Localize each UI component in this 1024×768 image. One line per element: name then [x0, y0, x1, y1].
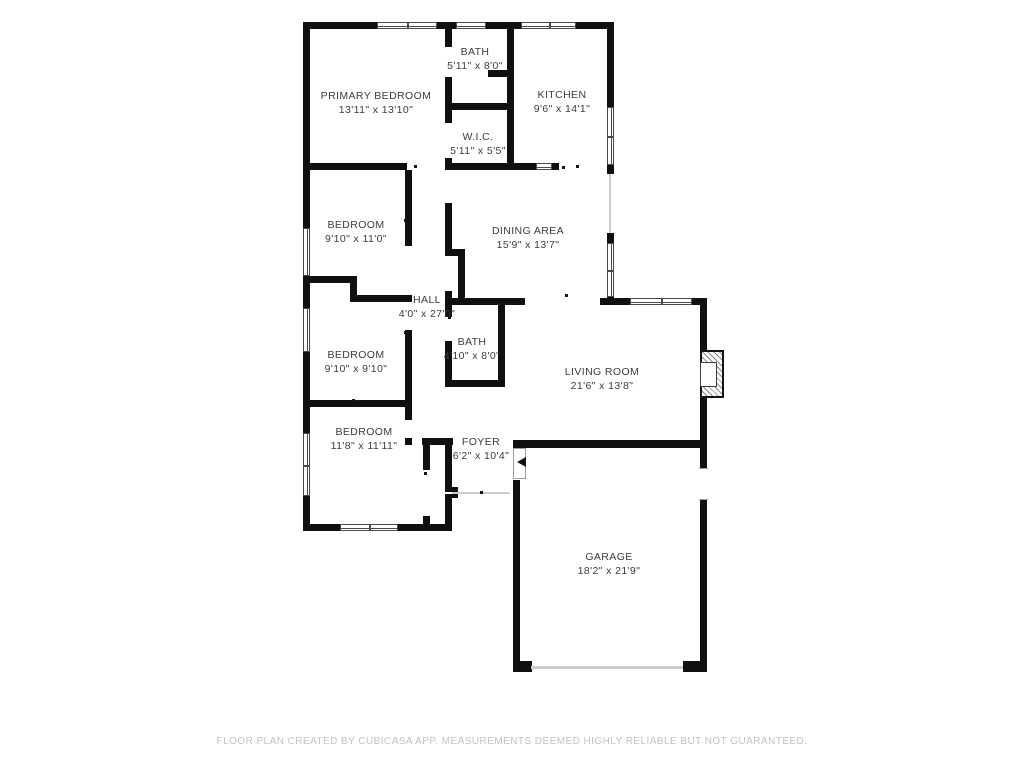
room-dimensions: 9'10" x 11'0" — [325, 232, 387, 246]
window-icon — [521, 22, 576, 29]
window-icon — [630, 298, 692, 305]
door-marker — [352, 399, 355, 402]
wall — [445, 203, 452, 252]
room-dimensions: 9'6" x 14'1" — [534, 102, 591, 116]
room-label-12-garage: GARAGE18'2" x 21'9" — [578, 550, 641, 578]
room-name: BATH — [444, 335, 501, 349]
wall — [398, 524, 452, 531]
room-label-6-hall: HALL4'0" x 27'0" — [399, 293, 456, 321]
window-icon — [303, 228, 310, 276]
window-icon — [536, 163, 552, 170]
wall — [305, 524, 340, 531]
wall — [458, 256, 465, 300]
room-dimensions: 5'11" x 8'0" — [447, 59, 503, 73]
wall — [576, 22, 614, 29]
room-label-3-w-i-c: W.I.C.5'11" x 5'5" — [450, 130, 506, 158]
floor-plan-page: PRIMARY BEDROOM13'11" x 13'10"BATH5'11" … — [0, 0, 1024, 768]
wall — [700, 305, 707, 350]
wall — [423, 445, 430, 470]
room-label-10-bedroom: BEDROOM11'8" x 11'11" — [331, 425, 398, 453]
wall — [405, 407, 412, 420]
wall — [405, 438, 412, 445]
room-name: KITCHEN — [534, 88, 591, 102]
room-dimensions: 18'2" x 21'9" — [578, 564, 641, 578]
wall — [445, 438, 452, 492]
door-marker — [562, 166, 565, 169]
door-marker — [565, 294, 568, 297]
room-name: DINING AREA — [492, 224, 564, 238]
wall — [700, 440, 707, 468]
wall — [692, 298, 707, 305]
door-marker — [424, 472, 427, 475]
fireplace-firebox — [700, 362, 717, 387]
wall — [445, 77, 452, 123]
door-marker — [404, 331, 407, 334]
room-dimensions: 4'0" x 27'0" — [399, 307, 456, 321]
room-name: LIVING ROOM — [565, 365, 639, 379]
room-label-9-living-room: LIVING ROOM21'6" x 13'8" — [565, 365, 639, 393]
room-label-2-kitchen: KITCHEN9'6" x 14'1" — [534, 88, 591, 116]
wall — [305, 400, 412, 407]
wall — [514, 163, 536, 170]
wall — [513, 661, 532, 672]
room-label-7-bath: BATH4'10" x 8'0" — [444, 335, 501, 363]
room-dimensions: 9'10" x 9'10" — [325, 362, 388, 376]
window-icon — [340, 524, 398, 531]
room-label-5-dining-area: DINING AREA15'9" x 13'7" — [492, 224, 564, 252]
door-marker — [404, 219, 407, 222]
room-dimensions: 13'11" x 13'10" — [321, 103, 432, 117]
wall — [607, 165, 614, 174]
room-dimensions: 11'8" x 11'11" — [331, 439, 398, 453]
door-marker — [414, 165, 417, 168]
wall — [303, 352, 310, 433]
wall — [305, 163, 407, 170]
wall — [486, 22, 521, 29]
room-name: HALL — [399, 293, 456, 307]
wall-opening — [609, 174, 611, 233]
wall — [445, 103, 507, 110]
wall — [700, 398, 707, 443]
wall — [513, 480, 520, 668]
wall — [405, 330, 412, 407]
room-dimensions: 15'9" x 13'7" — [492, 238, 564, 252]
room-name: BEDROOM — [325, 218, 387, 232]
room-label-8-bedroom: BEDROOM9'10" x 9'10" — [325, 348, 388, 376]
window-icon — [303, 308, 310, 352]
room-name: W.I.C. — [450, 130, 506, 144]
window-icon — [607, 107, 614, 165]
wall — [305, 22, 377, 29]
room-name: FOYER — [453, 435, 510, 449]
room-dimensions: 21'6" x 13'8" — [565, 379, 639, 393]
wall-opening — [531, 666, 683, 669]
wall — [700, 500, 707, 672]
room-label-11-foyer: FOYER6'2" x 10'4" — [453, 435, 510, 463]
garage-side-door — [699, 468, 708, 500]
floor-plan: PRIMARY BEDROOM13'11" x 13'10"BATH5'11" … — [0, 0, 1024, 768]
room-label-0-primary-bedroom: PRIMARY BEDROOM13'11" x 13'10" — [321, 89, 432, 117]
wall — [507, 29, 514, 170]
wall — [305, 276, 357, 283]
footer-disclaimer: FLOOR PLAN CREATED BY CUBICASA APP. MEAS… — [0, 736, 1024, 747]
wall — [405, 170, 412, 246]
wall — [445, 298, 525, 305]
room-name: BEDROOM — [325, 348, 388, 362]
wall — [445, 380, 505, 387]
wall — [552, 163, 559, 170]
room-label-1-bath: BATH5'11" x 8'0" — [447, 45, 503, 73]
window-icon — [607, 243, 614, 297]
room-name: PRIMARY BEDROOM — [321, 89, 432, 103]
wall — [513, 440, 707, 448]
window-icon — [456, 22, 486, 29]
room-dimensions: 6'2" x 10'4" — [453, 449, 510, 463]
wall — [445, 249, 465, 256]
window-icon — [377, 22, 437, 29]
room-name: GARAGE — [578, 550, 641, 564]
wall — [607, 29, 614, 107]
room-label-4-bedroom: BEDROOM9'10" x 11'0" — [325, 218, 387, 246]
room-name: BEDROOM — [331, 425, 398, 439]
room-dimensions: 4'10" x 8'0" — [444, 349, 501, 363]
door-marker — [576, 165, 579, 168]
wall — [600, 298, 630, 305]
room-dimensions: 5'11" x 5'5" — [450, 144, 506, 158]
wall — [437, 22, 456, 29]
door-swing-arrow-icon — [517, 457, 526, 467]
wall — [445, 163, 514, 170]
wall — [607, 233, 614, 243]
wall — [303, 22, 310, 228]
room-name: BATH — [447, 45, 503, 59]
window-icon — [303, 433, 310, 496]
door-marker — [480, 491, 483, 494]
